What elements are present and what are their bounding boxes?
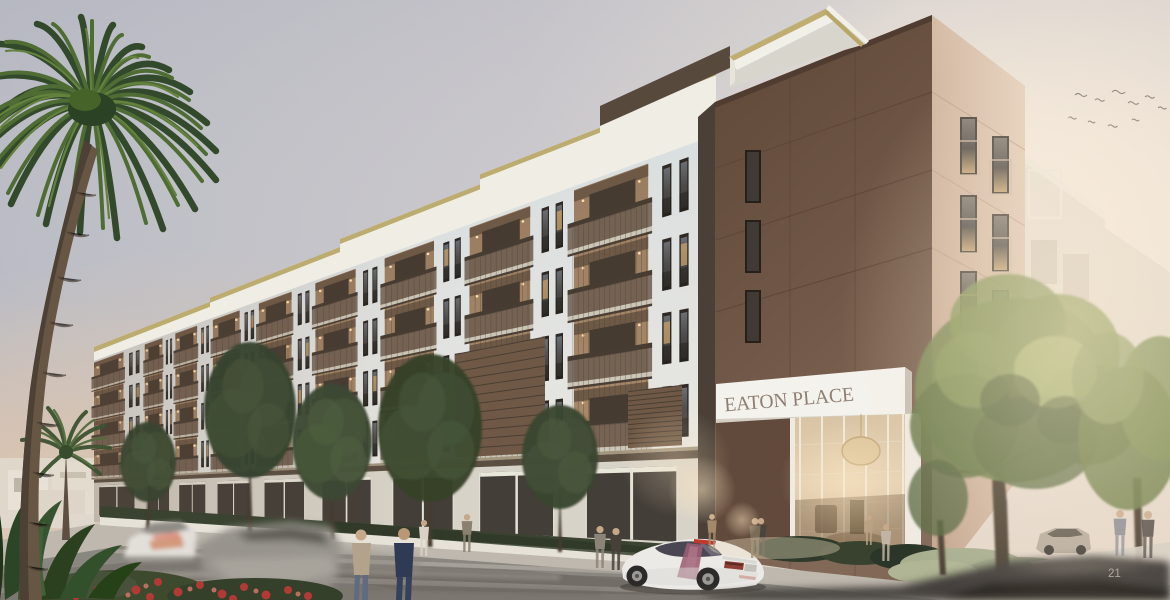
svg-text:21: 21 [1108,568,1121,580]
